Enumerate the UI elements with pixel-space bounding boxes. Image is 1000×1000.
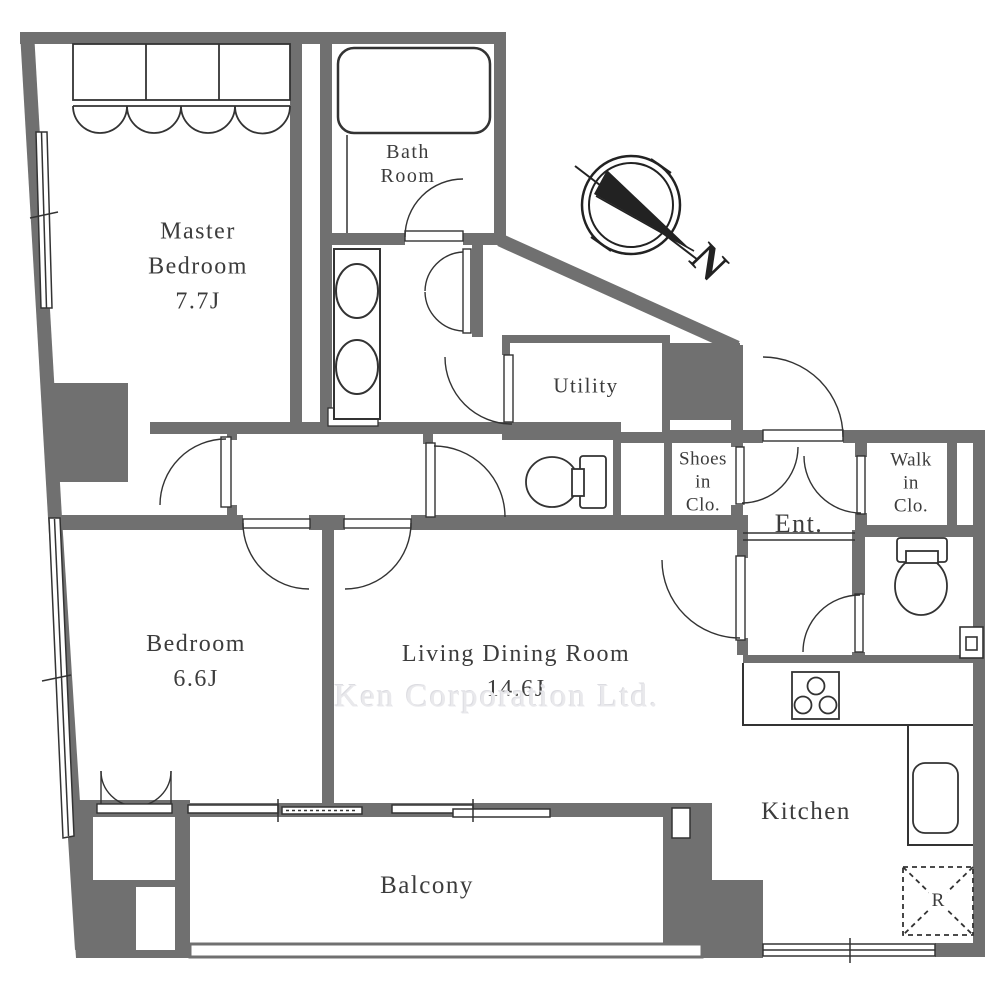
door-linen-arc-2	[425, 292, 463, 331]
label-line: Balcony	[380, 872, 474, 899]
door-washroom-leaf	[504, 355, 513, 422]
compass-icon	[575, 156, 698, 260]
label-bath-room: Bath Room	[381, 140, 436, 188]
label-line: R	[932, 890, 945, 911]
refrigerator-label: R	[929, 890, 948, 912]
label-master-bedroom: Master Bedroom 7.7J	[148, 215, 248, 320]
door-linen-arc-1	[425, 252, 463, 291]
master-closet-icon	[73, 44, 290, 134]
room-size: 7.7J	[148, 285, 248, 320]
sink-icon	[913, 763, 958, 833]
basin-icon	[336, 264, 378, 318]
label-line: Clo.	[679, 494, 727, 517]
door-living-arc	[662, 560, 740, 638]
label-line: Clo.	[890, 495, 932, 518]
vanity-icon	[334, 249, 380, 419]
watermark-text: Ken Corporation Ltd.	[334, 679, 659, 715]
window-south-1-icon	[188, 805, 278, 813]
door-wic-arc	[804, 456, 861, 513]
door-closet-bedroom-leaf	[243, 519, 310, 528]
label-line: Kitchen	[761, 798, 851, 825]
door-closet-west-arc	[160, 439, 226, 505]
label-line: in	[890, 472, 932, 495]
room-size: 6.6J	[146, 662, 246, 697]
window-south-3-icon	[453, 809, 550, 817]
door-toilet2-leaf	[855, 594, 863, 652]
door-entry-leaf	[763, 430, 843, 441]
label-utility: Utility	[553, 374, 618, 399]
wall-fixture-icon	[960, 627, 983, 658]
label-line: Room	[381, 164, 436, 188]
window-slot-icon	[672, 808, 690, 838]
door-linen-leaf	[463, 249, 471, 333]
door-closet-east-leaf	[426, 443, 435, 517]
label-entrance: Ent.	[775, 509, 824, 539]
door-entry-arc	[763, 357, 843, 437]
label-walk-in-closet: Walk in Clo.	[890, 449, 932, 518]
label-bedroom: Bedroom 6.6J	[146, 627, 246, 697]
label-line: Bedroom	[146, 627, 246, 662]
door-washroom-arc	[445, 357, 512, 424]
door-closet-living-leaf	[344, 519, 411, 528]
bedroom-closet-frame	[97, 804, 172, 813]
floorplan: Master Bedroom 7.7J Bath Room Utility Sh…	[0, 0, 1000, 1000]
door-closet-west-leaf	[221, 437, 231, 507]
label-balcony: Balcony	[380, 872, 474, 900]
stove-icon	[792, 672, 839, 719]
label-line: in	[679, 471, 727, 494]
toilet-icon	[526, 456, 606, 508]
door-wic-leaf	[857, 456, 865, 514]
label-line: Living Dining Room	[402, 637, 630, 672]
label-kitchen: Kitchen	[761, 798, 851, 826]
bathtub-icon	[338, 48, 490, 133]
door-closet-bedroom-arc	[243, 523, 309, 589]
label-line: Ent.	[775, 509, 824, 538]
label-line: Master	[148, 215, 248, 250]
watermark: Ken Corporation Ltd.	[334, 679, 659, 716]
balcony-railing	[190, 944, 702, 957]
door-living-leaf	[736, 556, 745, 640]
floorplan-graphic	[0, 0, 1000, 1000]
label-line: Walk	[890, 449, 932, 472]
door-ent-west-leaf	[736, 447, 744, 504]
door-toilet2-arc	[803, 595, 860, 652]
door-bath-leaf	[405, 231, 463, 241]
basin-icon	[336, 340, 378, 394]
toilet-icon	[895, 538, 947, 615]
door-ent-west-arc	[742, 447, 798, 503]
door-closet-east-arc	[434, 446, 505, 517]
label-shoes-closet: Shoes in Clo.	[679, 448, 727, 517]
label-line: Shoes	[679, 448, 727, 471]
label-line: Utility	[553, 374, 618, 398]
door-closet-living-arc	[345, 523, 411, 589]
label-line: Bedroom	[148, 250, 248, 285]
label-line: Bath	[381, 140, 436, 164]
